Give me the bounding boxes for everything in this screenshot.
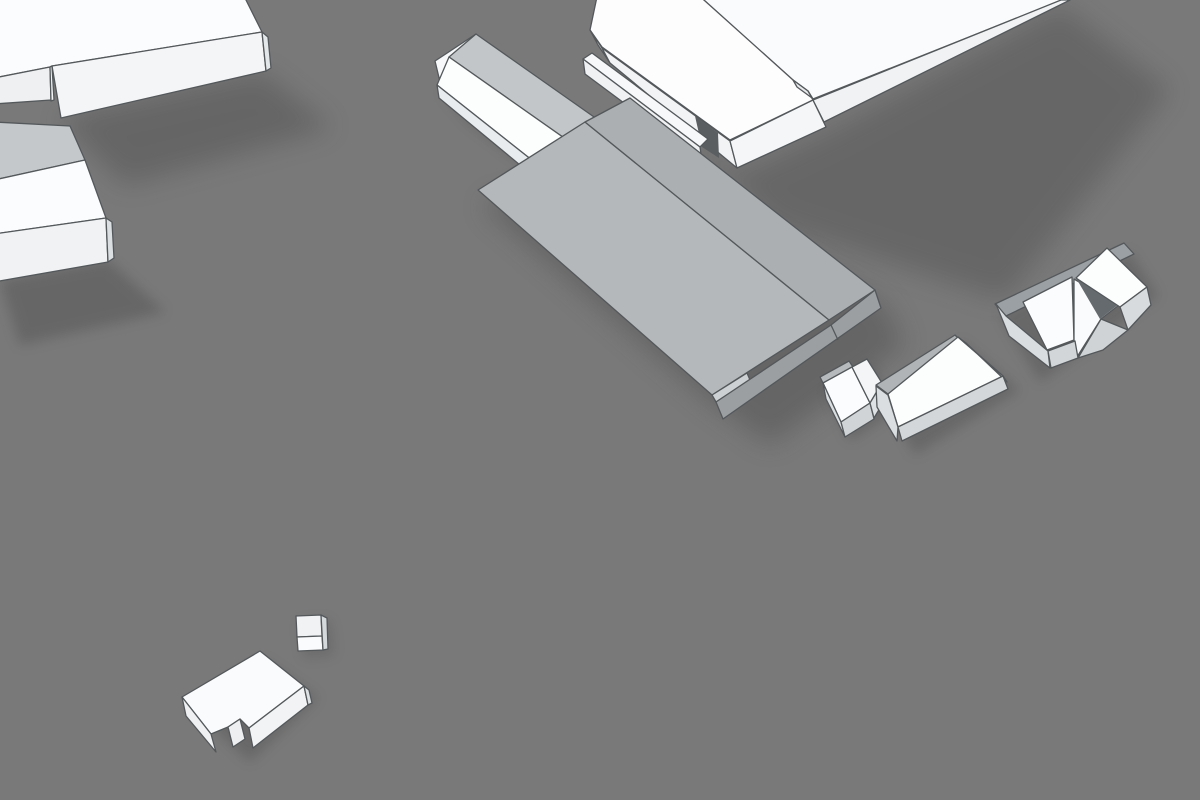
kiosk-flat-small-side-right: [321, 615, 328, 650]
kiosk-flat-small-face-lower: [297, 636, 323, 651]
massing-viewport[interactable]: [0, 0, 1200, 800]
kiosk-flat-small[interactable]: [296, 615, 328, 651]
kiosk-flat-small-face-upper: [296, 615, 322, 637]
